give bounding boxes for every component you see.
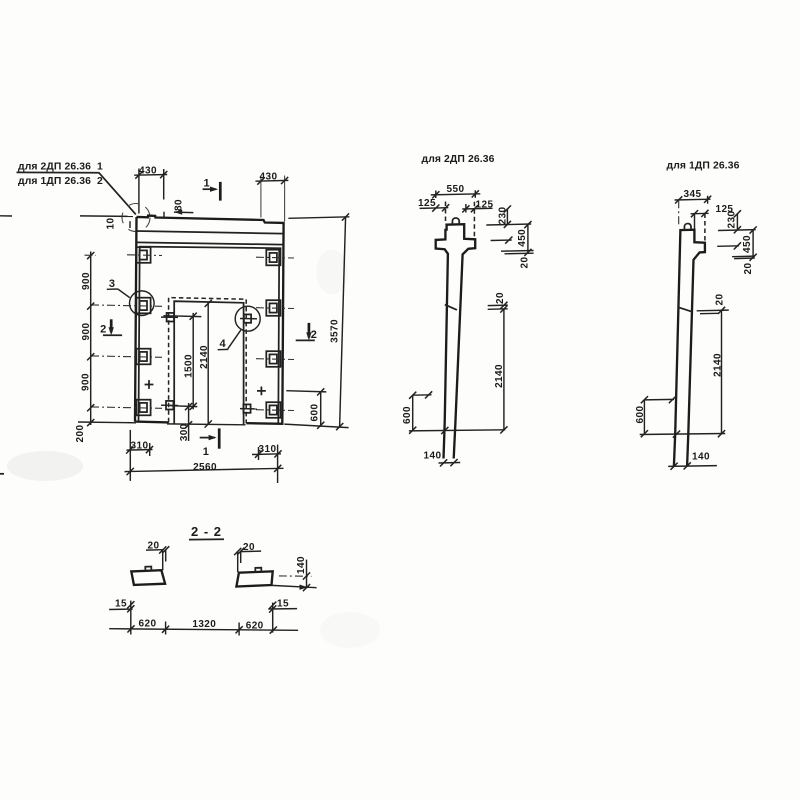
svg-text:1500: 1500 <box>184 354 195 378</box>
svg-text:для 1ДП 26.36: для 1ДП 26.36 <box>667 161 740 172</box>
svg-text:2: 2 <box>311 329 318 341</box>
svg-text:450: 450 <box>517 229 528 247</box>
svg-text:20: 20 <box>743 263 754 275</box>
svg-text:620: 620 <box>139 618 157 629</box>
svg-text:600: 600 <box>310 404 321 422</box>
svg-text:4: 4 <box>219 338 226 350</box>
svg-text:140: 140 <box>692 451 710 462</box>
svg-text:2 - 2: 2 - 2 <box>191 524 222 539</box>
svg-text:10: 10 <box>106 218 117 230</box>
svg-text:20: 20 <box>148 540 160 551</box>
svg-text:1: 1 <box>203 446 210 458</box>
svg-text:200: 200 <box>75 425 86 443</box>
svg-text:140: 140 <box>296 556 307 574</box>
svg-text:20: 20 <box>714 294 725 306</box>
svg-text:140: 140 <box>424 450 442 461</box>
svg-text:2140: 2140 <box>494 364 505 388</box>
svg-text:для 2ДП 26.36 1: для 2ДП 26.36 1 <box>18 162 103 173</box>
svg-text:600: 600 <box>635 406 646 424</box>
svg-text:80: 80 <box>174 199 185 211</box>
svg-text:125: 125 <box>476 199 494 210</box>
svg-text:1: 1 <box>203 178 210 190</box>
svg-text:2560: 2560 <box>193 462 217 473</box>
svg-text:900: 900 <box>81 323 92 341</box>
svg-text:для 1ДП 26.36 2: для 1ДП 26.36 2 <box>18 176 103 187</box>
svg-text:15: 15 <box>277 599 289 610</box>
svg-text:230: 230 <box>498 207 509 225</box>
svg-text:1320: 1320 <box>192 619 216 630</box>
svg-text:2140: 2140 <box>712 353 723 377</box>
svg-text:3: 3 <box>109 278 116 290</box>
svg-text:20: 20 <box>243 542 255 553</box>
svg-text:310: 310 <box>131 440 149 451</box>
svg-text:230: 230 <box>727 211 738 229</box>
svg-text:20: 20 <box>495 292 506 304</box>
svg-text:900: 900 <box>81 373 92 391</box>
svg-text:900: 900 <box>81 272 92 290</box>
svg-text:430: 430 <box>139 166 157 177</box>
svg-text:310: 310 <box>259 444 277 455</box>
svg-text:430: 430 <box>260 172 278 183</box>
svg-text:125: 125 <box>418 198 436 209</box>
svg-text:для 2ДП 26.36: для 2ДП 26.36 <box>422 154 495 165</box>
svg-text:2140: 2140 <box>199 345 210 369</box>
svg-text:3570: 3570 <box>330 319 341 343</box>
svg-text:450: 450 <box>742 235 753 253</box>
svg-text:620: 620 <box>246 620 264 631</box>
svg-text:600: 600 <box>402 406 413 424</box>
svg-text:550: 550 <box>447 184 465 195</box>
svg-text:345: 345 <box>684 189 702 200</box>
svg-text:300: 300 <box>179 423 190 441</box>
svg-text:2: 2 <box>100 324 107 336</box>
svg-text:20: 20 <box>519 257 530 269</box>
svg-text:15: 15 <box>115 598 127 609</box>
